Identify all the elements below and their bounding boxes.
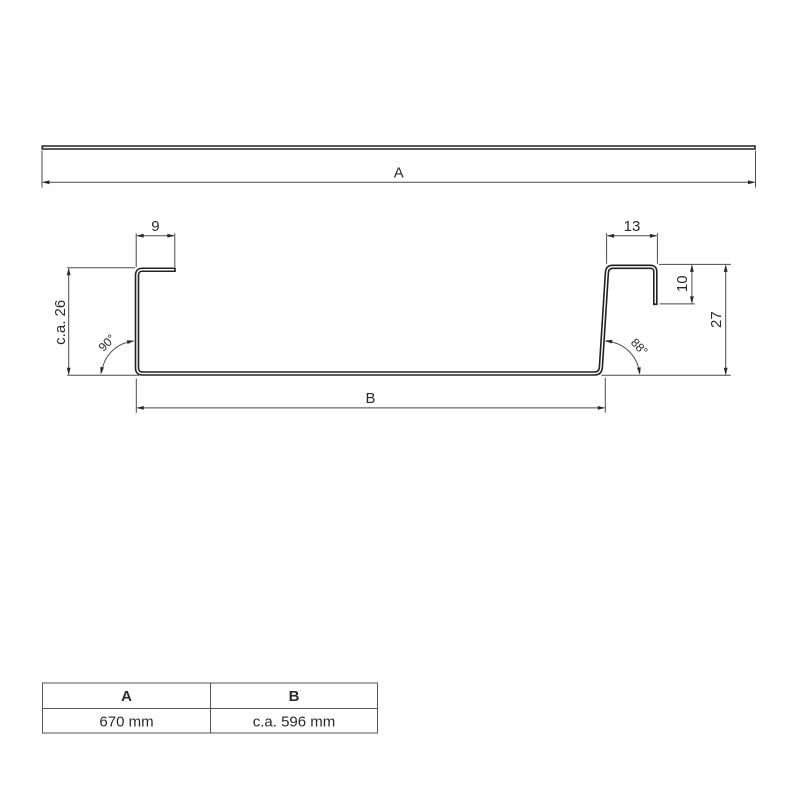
svg-text:c.a. 596 mm: c.a. 596 mm [253, 714, 336, 731]
svg-text:9: 9 [151, 218, 159, 235]
svg-text:A: A [394, 165, 404, 182]
svg-text:c.a. 26: c.a. 26 [52, 300, 69, 345]
svg-text:13: 13 [624, 218, 641, 235]
svg-text:B: B [289, 688, 300, 705]
svg-text:10: 10 [674, 275, 691, 292]
svg-text:A: A [121, 688, 132, 705]
svg-text:B: B [365, 390, 375, 407]
svg-text:670 mm: 670 mm [99, 714, 153, 731]
svg-text:27: 27 [708, 311, 725, 328]
